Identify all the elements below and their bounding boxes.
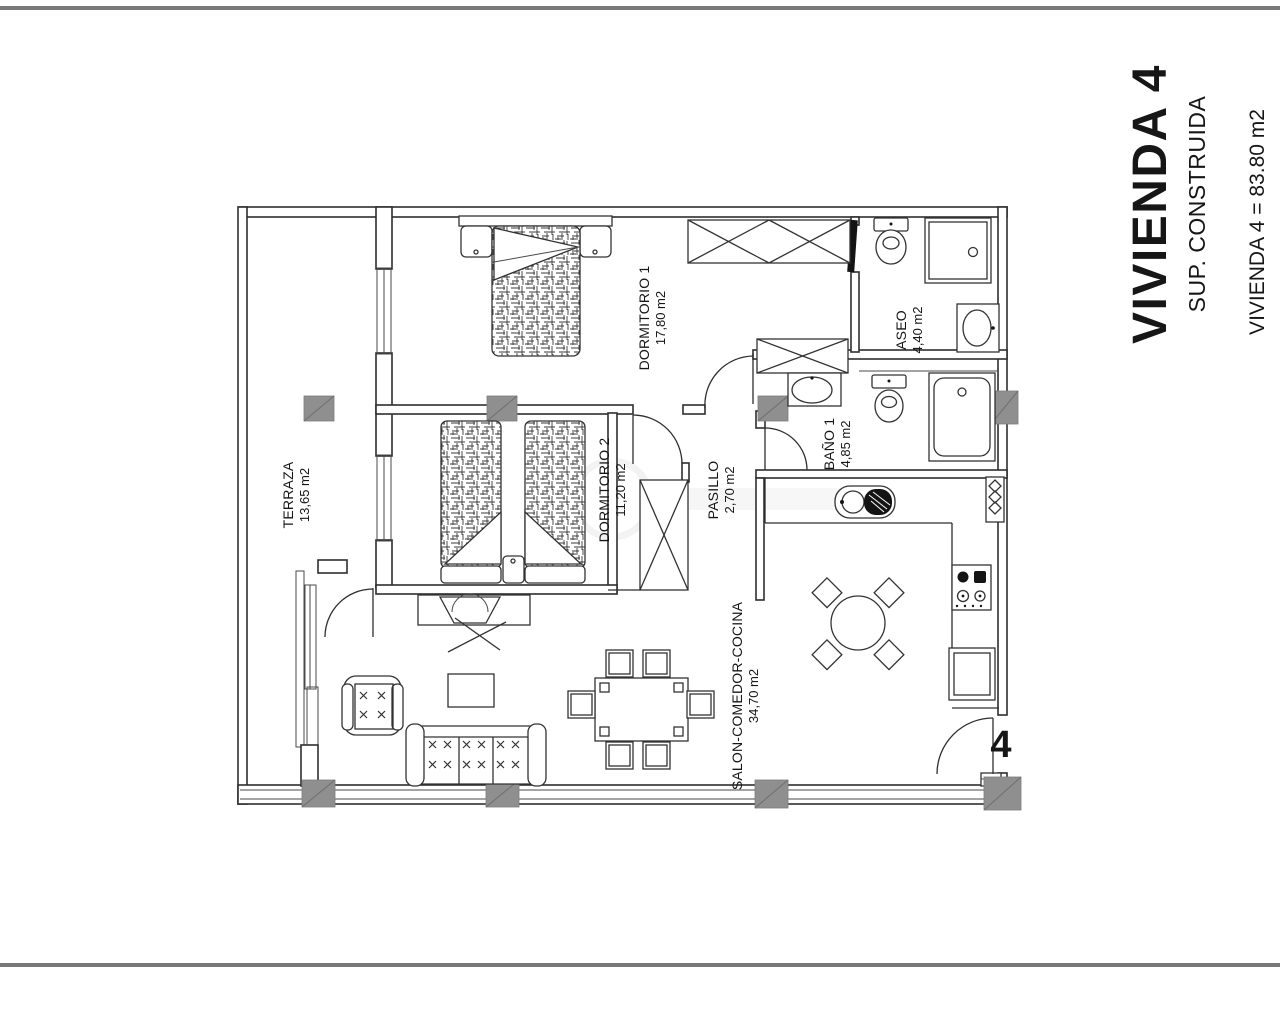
svg-text:4,85 m2: 4,85 m2: [838, 421, 853, 468]
washbasin-bano: [788, 373, 841, 406]
svg-text:DORMITORIO 2: DORMITORIO 2: [596, 438, 612, 543]
svg-text:DORMITORIO 1: DORMITORIO 1: [636, 266, 652, 371]
floor-plan-drawing: TERRAZA 13,65 m2 DORMITORIO 1 17,80 m2 D…: [0, 0, 1280, 1024]
beds-dormitorio-2: [441, 421, 585, 583]
svg-text:4,40 m2: 4,40 m2: [910, 307, 925, 354]
svg-text:17,80 m2: 17,80 m2: [653, 291, 668, 345]
room-label-terraza: TERRAZA 13,65 m2: [280, 461, 312, 528]
sliding-door-terraza: [296, 560, 347, 786]
armchair: [342, 676, 403, 735]
svg-text:11,20 m2: 11,20 m2: [613, 463, 628, 516]
kitchen-sink: [835, 486, 895, 518]
bed-dormitorio-1: [459, 216, 612, 356]
svg-text:VIVIENDA 4: VIVIENDA 4: [1124, 64, 1177, 344]
door-dormitorio-1: [705, 353, 753, 408]
title-sup-construida: SUP. CONSTRUIDA: [1184, 96, 1210, 313]
wardrobe-pasillo: [757, 339, 848, 373]
toilet-bano: [872, 375, 906, 422]
svg-text:PASILLO: PASILLO: [705, 461, 721, 520]
svg-text:BAÑO 1: BAÑO 1: [821, 418, 837, 471]
door-terraza: [325, 588, 373, 637]
kitchen-table-set: [812, 578, 904, 670]
coffee-table: [448, 674, 494, 707]
room-label-dormitorio-1: DORMITORIO 1 17,80 m2: [636, 266, 668, 371]
svg-text:ASEO: ASEO: [893, 310, 909, 350]
svg-text:13,65 m2: 13,65 m2: [297, 468, 312, 522]
sofa: [406, 724, 546, 786]
wardrobe-dormitorio-1: [688, 220, 850, 263]
room-label-aseo: ASEO 4,40 m2: [893, 307, 925, 354]
fridge: [949, 648, 995, 700]
boiler-radiator: [986, 477, 1004, 522]
title-area-line: VIVIENDA 4 = 83.80 m2: [1246, 109, 1269, 335]
shower-aseo: [925, 218, 991, 283]
room-label-bano-1: BAÑO 1 4,85 m2: [821, 418, 853, 471]
svg-text:VIVIENDA 4 = 83.80 m2: VIVIENDA 4 = 83.80 m2: [1246, 109, 1269, 335]
door-dormitorio-2: [633, 415, 682, 464]
svg-text:TERRAZA: TERRAZA: [280, 461, 296, 528]
tv-unit: [418, 594, 530, 652]
stove: [952, 565, 991, 610]
svg-text:SUP. CONSTRUIDA: SUP. CONSTRUIDA: [1184, 96, 1210, 313]
svg-text:SALON-COMEDOR-COCINA: SALON-COMEDOR-COCINA: [729, 601, 745, 790]
toilet-aseo: [874, 218, 908, 264]
dining-table-set: [568, 650, 714, 769]
title-vivienda: VIVIENDA 4: [1124, 64, 1177, 344]
floor-plan-page: TERRAZA 13,65 m2 DORMITORIO 1 17,80 m2 D…: [0, 0, 1280, 1024]
wardrobe-dormitorio-2: [640, 480, 688, 590]
svg-text:2,70 m2: 2,70 m2: [722, 467, 737, 514]
door-bano: [765, 428, 807, 470]
svg-text:34,70 m2: 34,70 m2: [746, 669, 761, 723]
washbasin-aseo: [957, 304, 999, 352]
room-label-salon: SALON-COMEDOR-COCINA 34,70 m2: [729, 601, 761, 790]
door-entrance: [937, 718, 993, 774]
bathtub-bano: [929, 373, 995, 461]
unit-number: 4: [990, 724, 1011, 766]
